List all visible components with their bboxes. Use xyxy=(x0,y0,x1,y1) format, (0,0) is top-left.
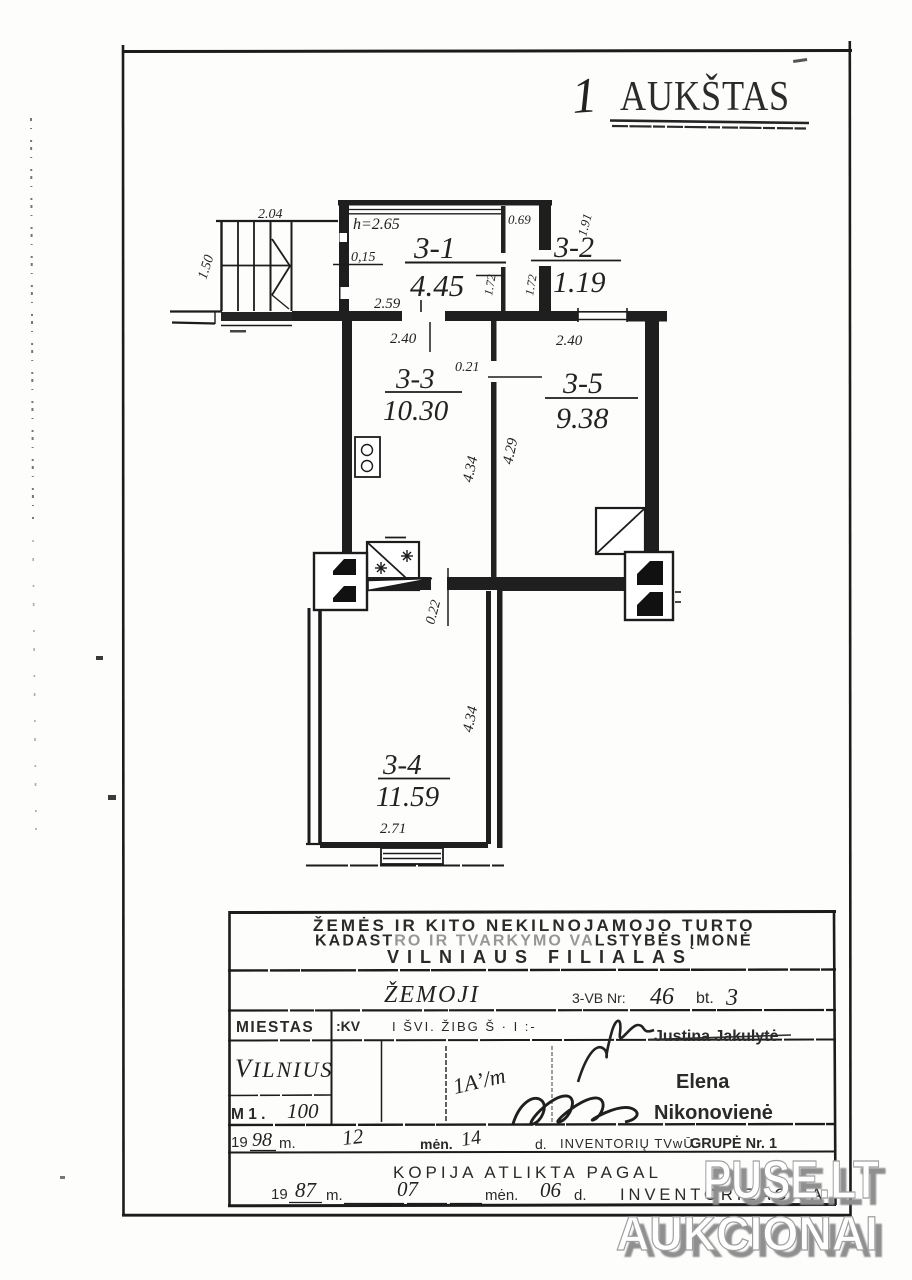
svg-text:3-2: 3-2 xyxy=(553,231,594,264)
svg-text:Nikonovienė: Nikonovienė xyxy=(654,1102,773,1124)
svg-text:12: 12 xyxy=(341,1124,365,1150)
svg-text:d.: d. xyxy=(535,1136,547,1152)
svg-text:98: 98 xyxy=(252,1129,272,1151)
svg-text:14: 14 xyxy=(460,1126,483,1151)
svg-text:mėn.: mėn. xyxy=(420,1136,453,1152)
svg-text:INVENTORIŲ TVwŪ: INVENTORIŲ TVwŪ xyxy=(560,1136,694,1151)
svg-text:h=2.65: h=2.65 xyxy=(353,216,400,233)
svg-text:ŽEMOJI: ŽEMOJI xyxy=(384,982,480,1008)
svg-text:I ŠVI. ŽIBG Š · I :-: I ŠVI. ŽIBG Š · I :- xyxy=(392,1019,537,1034)
svg-text:d.: d. xyxy=(574,1187,587,1204)
svg-text:07: 07 xyxy=(397,1177,420,1201)
svg-text:M 1 .: M 1 . xyxy=(231,1106,265,1123)
svg-text:MIESTAS: MIESTAS xyxy=(236,1019,314,1036)
svg-text:87: 87 xyxy=(295,1178,318,1202)
svg-text:m.: m. xyxy=(279,1135,296,1152)
svg-text:Elena: Elena xyxy=(676,1071,730,1093)
svg-text:06: 06 xyxy=(540,1178,562,1202)
svg-text:PUSE.LT: PUSE.LT xyxy=(703,1150,879,1210)
svg-text:3: 3 xyxy=(725,985,738,1011)
svg-text:3-5: 3-5 xyxy=(562,367,603,400)
svg-text::KV: :KV xyxy=(336,1018,361,1034)
svg-text:0.21: 0.21 xyxy=(455,360,480,375)
svg-text:m.: m. xyxy=(326,1187,343,1204)
svg-text:1: 1 xyxy=(570,66,599,124)
svg-text:2.40: 2.40 xyxy=(556,333,583,349)
svg-text:AUKCIONAI: AUKCIONAI xyxy=(616,1208,878,1261)
svg-text:2.71: 2.71 xyxy=(380,821,406,837)
svg-text:19: 19 xyxy=(231,1134,248,1151)
svg-text:2.40: 2.40 xyxy=(390,331,417,347)
svg-text:VILNIUS: VILNIUS xyxy=(235,1054,333,1083)
svg-text:3-VB Nr:: 3-VB Nr: xyxy=(572,990,626,1006)
svg-text:0,15: 0,15 xyxy=(351,250,376,265)
svg-text:10.30: 10.30 xyxy=(383,395,449,427)
svg-text:4.45: 4.45 xyxy=(410,268,464,303)
svg-text:2.59: 2.59 xyxy=(374,296,401,312)
svg-text:bt.: bt. xyxy=(696,990,714,1007)
svg-text:19: 19 xyxy=(271,1186,288,1203)
svg-text:3-4: 3-4 xyxy=(382,749,422,781)
svg-text:AUKŠTAS: AUKŠTAS xyxy=(620,73,790,120)
svg-text:VILNIAUS FILIALAS: VILNIAUS FILIALAS xyxy=(387,947,693,967)
svg-text:100: 100 xyxy=(287,1099,319,1123)
svg-text:46: 46 xyxy=(650,984,674,1010)
svg-text:3-3: 3-3 xyxy=(395,363,435,395)
svg-text:3-1: 3-1 xyxy=(413,230,455,265)
svg-text:9.38: 9.38 xyxy=(556,402,609,435)
svg-text:1.19: 1.19 xyxy=(553,266,606,299)
svg-text:2.04: 2.04 xyxy=(258,207,283,222)
svg-text:KOPIJA ATLIKTA PAGAL: KOPIJA ATLIKTA PAGAL xyxy=(393,1163,662,1182)
svg-text:0.69: 0.69 xyxy=(508,212,531,227)
svg-text:11.59: 11.59 xyxy=(376,781,440,813)
svg-text:mėn.: mėn. xyxy=(485,1187,518,1204)
